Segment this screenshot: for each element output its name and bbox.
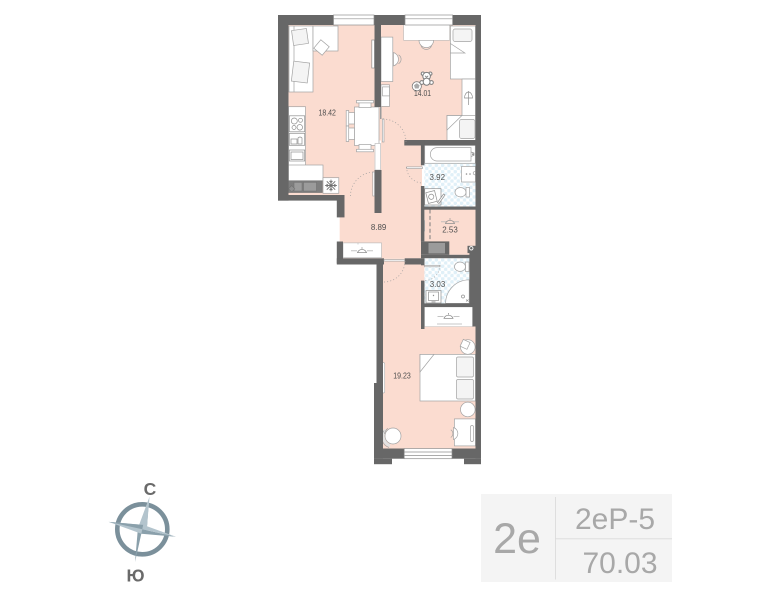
svg-text:70.03: 70.03 bbox=[582, 547, 657, 580]
svg-text:2е: 2е bbox=[493, 515, 541, 563]
svg-text:3.03: 3.03 bbox=[430, 279, 446, 289]
svg-text:8.89: 8.89 bbox=[371, 222, 387, 232]
svg-text:С: С bbox=[144, 479, 157, 499]
svg-text:Ю: Ю bbox=[126, 566, 144, 586]
svg-text:19.23: 19.23 bbox=[393, 370, 411, 380]
svg-text:3.92: 3.92 bbox=[430, 172, 446, 182]
svg-text:18.42: 18.42 bbox=[318, 107, 336, 117]
svg-text:14.01: 14.01 bbox=[414, 88, 431, 98]
svg-text:2еР-5: 2еР-5 bbox=[575, 503, 655, 536]
svg-text:2.53: 2.53 bbox=[442, 225, 458, 235]
